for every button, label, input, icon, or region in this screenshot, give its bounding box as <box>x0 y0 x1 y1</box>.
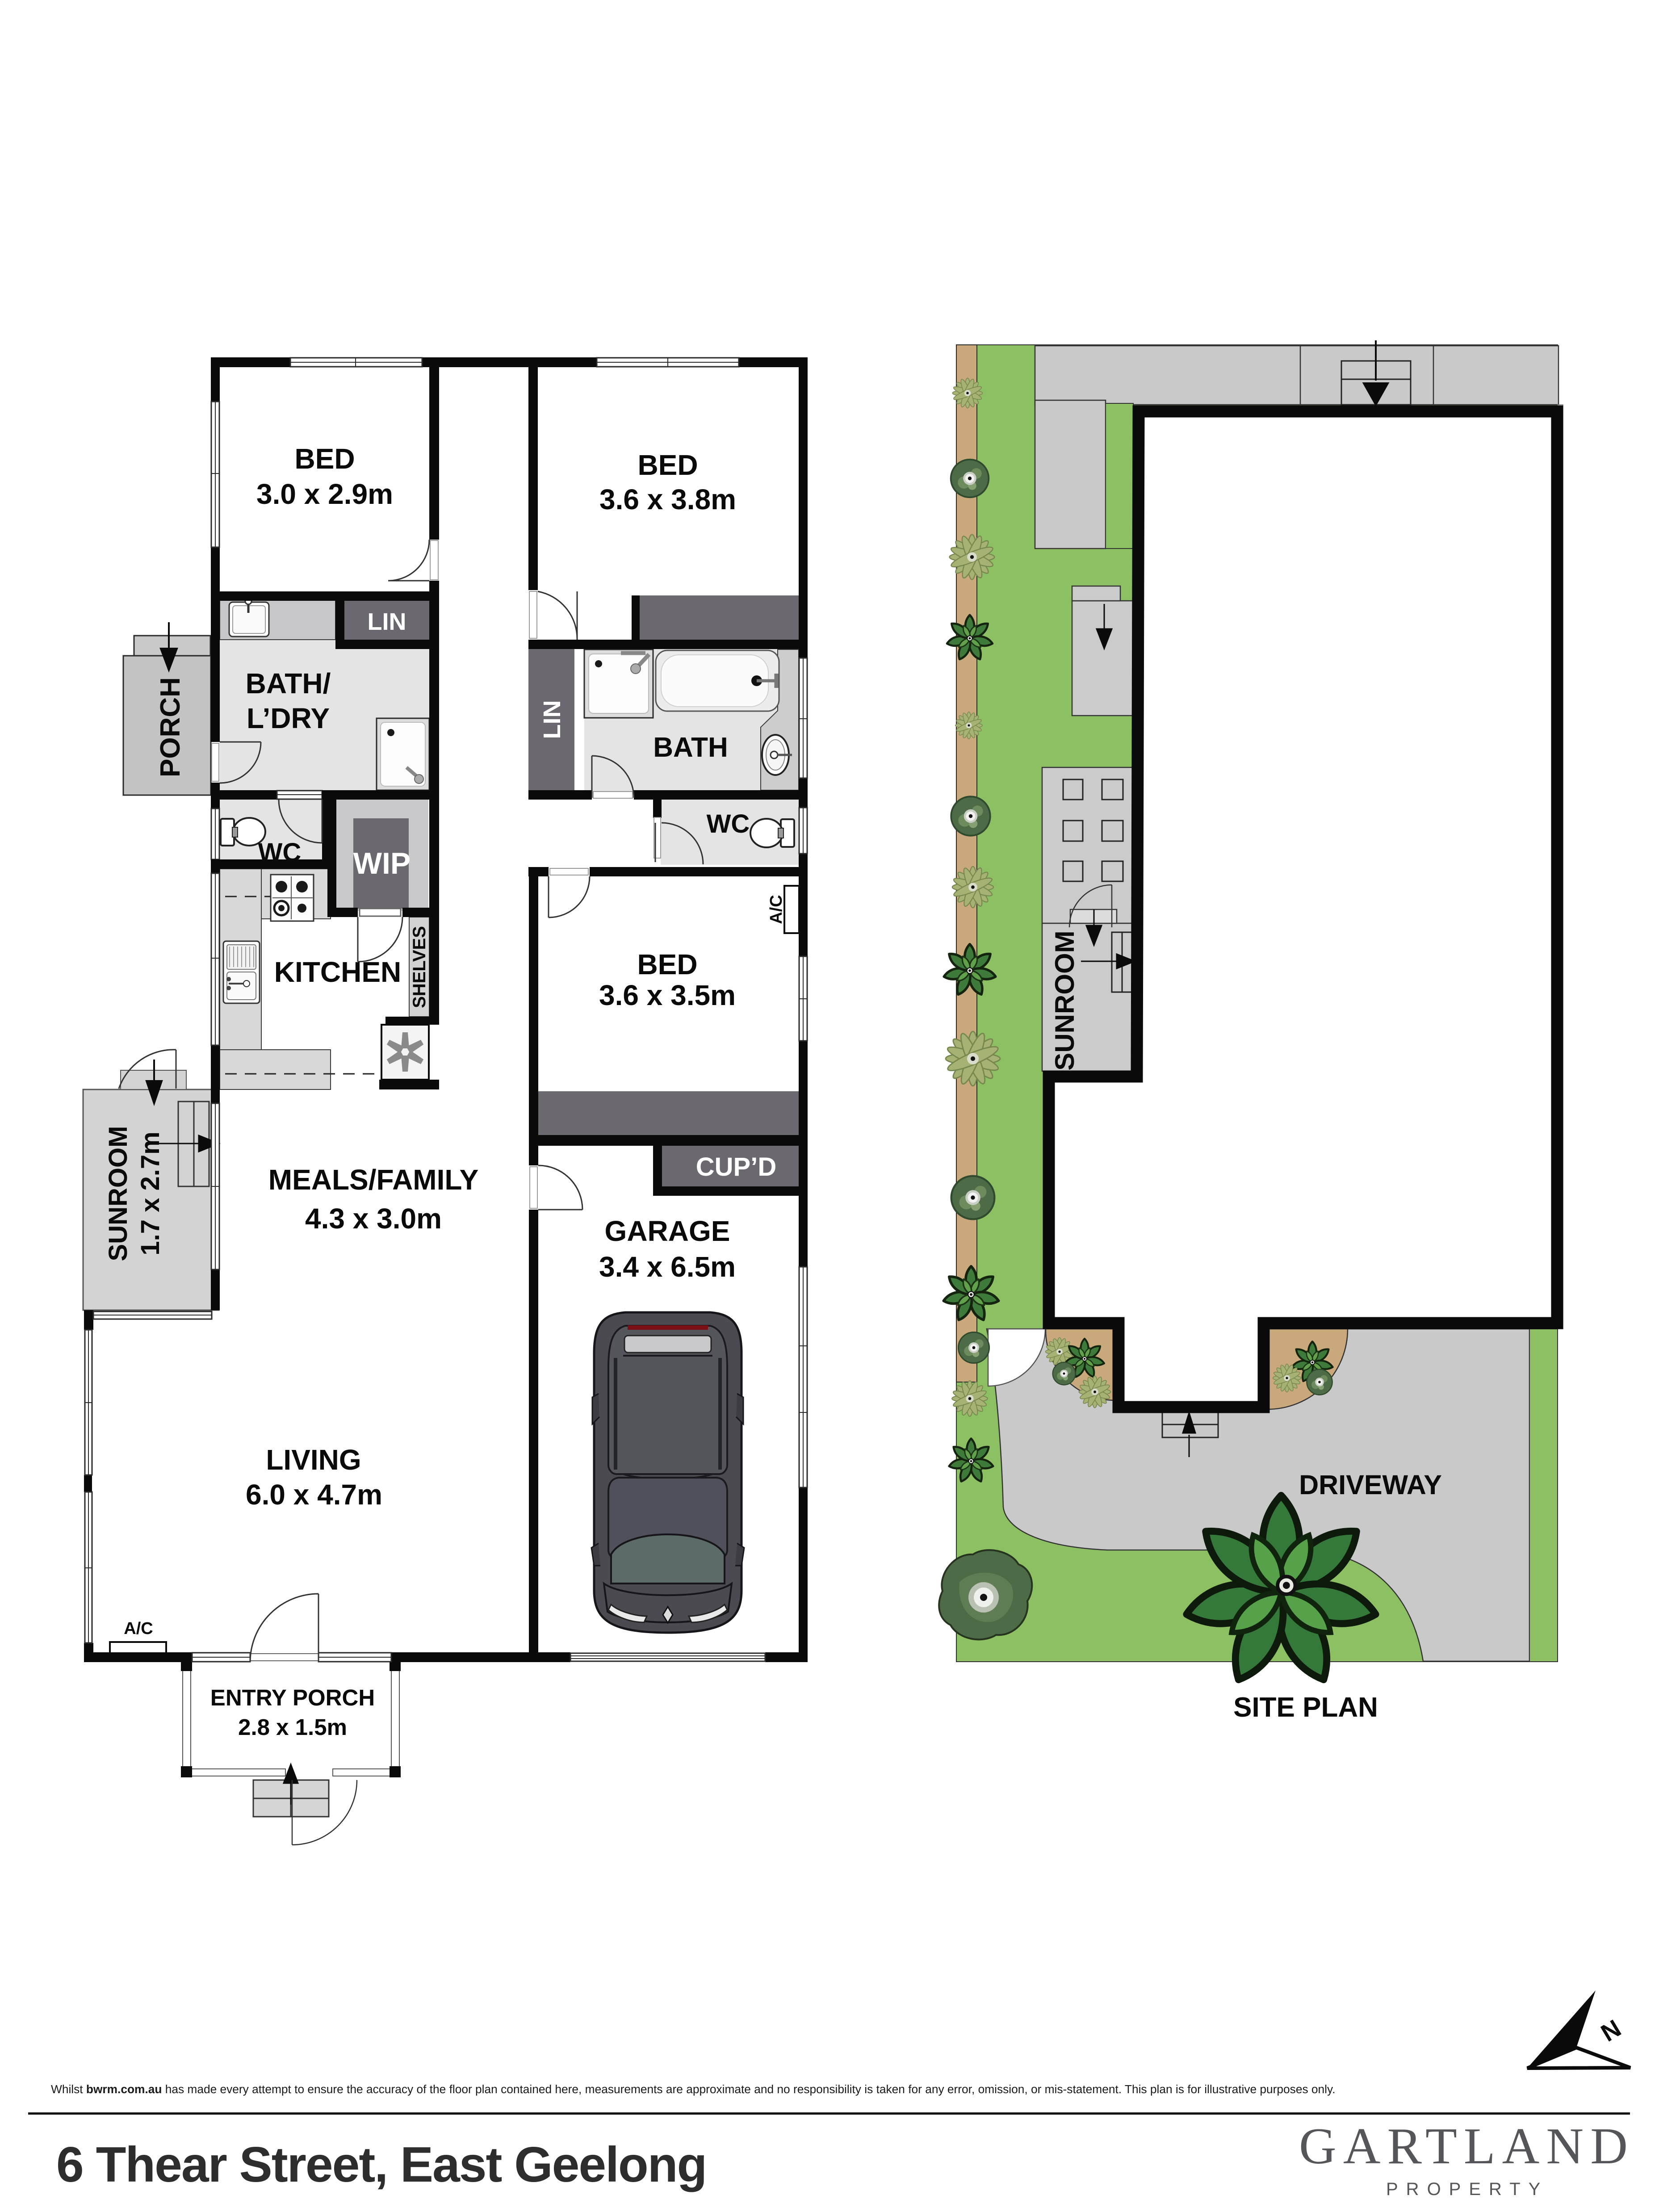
svg-text:BED: BED <box>637 449 698 481</box>
svg-text:DRIVEWAY: DRIVEWAY <box>1299 1470 1442 1500</box>
svg-text:MEALS/FAMILY: MEALS/FAMILY <box>268 1164 479 1196</box>
svg-text:A/C: A/C <box>124 1619 153 1638</box>
svg-text:SUNROOM: SUNROOM <box>1050 930 1080 1070</box>
svg-text:SUNROOM: SUNROOM <box>104 1126 133 1261</box>
svg-text:PORCH: PORCH <box>155 677 186 777</box>
svg-text:3.4 x 6.5m: 3.4 x 6.5m <box>599 1251 736 1283</box>
svg-text:LIVING: LIVING <box>266 1444 361 1476</box>
svg-text:BED: BED <box>294 443 355 475</box>
svg-text:SITE PLAN: SITE PLAN <box>1233 1692 1378 1723</box>
svg-text:ENTRY PORCH: ENTRY PORCH <box>210 1685 375 1710</box>
svg-text:SHELVES: SHELVES <box>410 926 429 1008</box>
svg-text:GARAGE: GARAGE <box>605 1215 730 1247</box>
svg-text:3.6 x 3.5m: 3.6 x 3.5m <box>599 979 736 1011</box>
svg-text:LIN: LIN <box>539 700 566 739</box>
svg-text:WC: WC <box>707 809 750 838</box>
svg-text:CUP’D: CUP’D <box>696 1152 776 1181</box>
svg-text:6.0 x 4.7m: 6.0 x 4.7m <box>246 1479 382 1511</box>
svg-text:BED: BED <box>637 948 697 980</box>
svg-text:3.6 x 3.8m: 3.6 x 3.8m <box>599 483 736 515</box>
svg-text:BATH: BATH <box>653 732 728 763</box>
svg-text:LIN: LIN <box>368 608 406 635</box>
svg-text:WC: WC <box>258 838 302 867</box>
svg-text:BATH/: BATH/ <box>246 667 331 700</box>
svg-text:GARTLAND: GARTLAND <box>1299 2118 1634 2175</box>
svg-text:L’DRY: L’DRY <box>247 702 330 734</box>
svg-text:6 Thear Street, East Geelong: 6 Thear Street, East Geelong <box>56 2137 706 2192</box>
svg-text:3.0 x 2.9m: 3.0 x 2.9m <box>256 478 393 510</box>
svg-text:KITCHEN: KITCHEN <box>274 956 401 988</box>
svg-text:Whilst bwrm.com.au has made ev: Whilst bwrm.com.au has made every attemp… <box>51 2082 1336 2096</box>
svg-text:WIP: WIP <box>353 846 411 880</box>
svg-text:2.8 x 1.5m: 2.8 x 1.5m <box>238 1714 347 1740</box>
svg-text:PROPERTY: PROPERTY <box>1386 2179 1548 2199</box>
svg-text:4.3 x 3.0m: 4.3 x 3.0m <box>305 1202 442 1235</box>
svg-text:1.7 x 2.7m: 1.7 x 2.7m <box>136 1131 165 1255</box>
svg-text:A/C: A/C <box>767 895 786 924</box>
